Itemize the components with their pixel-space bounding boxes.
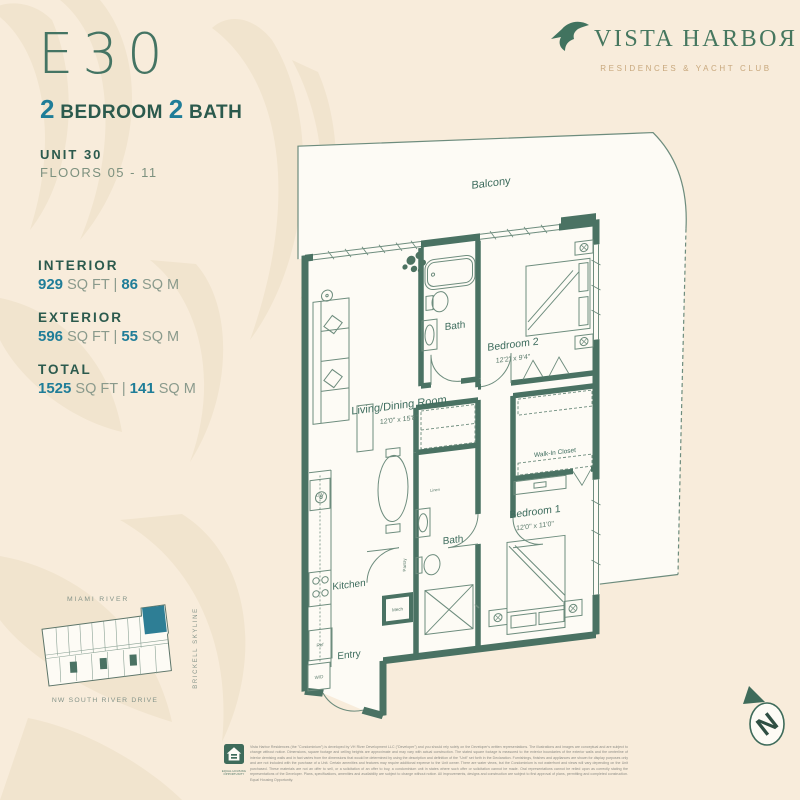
north-compass-icon: N	[735, 682, 799, 750]
equal-housing-label: EQUAL HOUSING OPPORTUNITY	[221, 770, 247, 776]
fixture-label-dw: DW	[316, 492, 324, 498]
area-stats: INTERIOR 929 SQ FT | 86 SQ M EXTERIOR 59…	[38, 258, 248, 414]
unit-number-label: UNIT 30	[40, 147, 102, 162]
floors-label: FLOORS 05 - 11	[40, 165, 158, 180]
bath-count: 2	[169, 94, 183, 124]
keyplan-label-skyline: BRICKELL SKYLINE	[193, 607, 199, 688]
keyplan-label-drive: NW SOUTH RIVER DRIVE	[52, 697, 158, 704]
bed-count: 2	[40, 94, 54, 124]
keyplan-label-river: MIAMI RIVER	[67, 596, 129, 603]
stat-label: INTERIOR	[38, 258, 248, 273]
stat-total: TOTAL 1525 SQ FT | 141 SQ M	[38, 362, 248, 397]
floorplan: Balcony	[283, 128, 713, 748]
highlighted-unit	[142, 605, 167, 634]
stat-interior: INTERIOR 929 SQ FT | 86 SQ M	[38, 258, 248, 293]
equal-housing-icon	[224, 744, 244, 764]
bird-icon	[549, 20, 591, 56]
stat-value: 929 SQ FT | 86 SQ M	[38, 276, 248, 293]
legal-disclaimer: Vista Harbor Residences (the "Condominiu…	[250, 745, 628, 783]
stat-value: 1525 SQ FT | 141 SQ M	[38, 380, 248, 397]
equal-housing-logo: EQUAL HOUSING OPPORTUNITY	[221, 744, 247, 776]
floorplan-brochure-page: E30 2 BEDROOM 2 BATH UNIT 30 FLOORS 05 -…	[0, 0, 800, 800]
keyplan-map: MIAMI RIVER BRICKELL SKYLINE NW SOUTH RI…	[25, 586, 225, 711]
unit-type-subtitle: 2 BEDROOM 2 BATH	[40, 94, 242, 125]
stat-label: EXTERIOR	[38, 310, 248, 325]
stat-exterior: EXTERIOR 596 SQ FT | 55 SQ M	[38, 310, 248, 345]
fixture-label-pantry: Pantry	[402, 558, 407, 572]
brand-name: VISTA HARBOЯ	[594, 26, 784, 53]
bed-label: BEDROOM	[60, 102, 163, 123]
unit-code: E30	[38, 22, 172, 87]
stat-value: 596 SQ FT | 55 SQ M	[38, 328, 248, 345]
fixture-label-ref: Ref	[317, 642, 325, 648]
brand-tagline: RESIDENCES & YACHT CLUB	[596, 64, 776, 73]
stat-label: TOTAL	[38, 362, 248, 377]
bath-label: BATH	[189, 102, 242, 123]
